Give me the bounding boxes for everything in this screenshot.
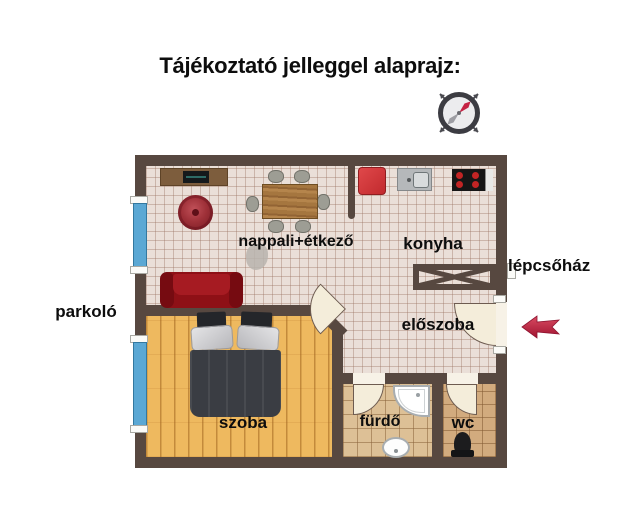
sink-faucet [407, 178, 411, 182]
sink-basin [413, 172, 429, 188]
bathroom-door-gap [353, 373, 385, 384]
pillow [190, 325, 234, 352]
dining-chair [294, 170, 310, 183]
entrance-arrow-icon [521, 314, 561, 340]
room-label-konyha: konyha [383, 235, 483, 253]
dining-chair [317, 194, 330, 210]
room-label-eloszoba: előszoba [390, 316, 486, 334]
sink-drain [394, 449, 398, 453]
tv-accent [186, 176, 206, 178]
duvet [190, 350, 281, 417]
dining-chair [295, 220, 311, 233]
sofa-arm-left [160, 272, 174, 308]
outside-label-parkolo: parkoló [42, 303, 130, 321]
round-rug [178, 195, 213, 230]
floor-plan-page: Tájékoztató jelleggel alaprajz: [0, 0, 640, 508]
dining-table [262, 184, 318, 219]
door-frame-mark [493, 295, 506, 303]
wall-bedroom-right [332, 326, 343, 457]
bedroom-window [133, 342, 147, 426]
kitchen-sink [397, 168, 432, 191]
outside-label-lepcsohaz: lépcsőház [508, 257, 616, 275]
wall-kitchen-stub [348, 166, 355, 219]
closet-symbol [413, 264, 496, 290]
toilet-tank [451, 450, 474, 457]
pillow [236, 325, 280, 352]
stove-burner [472, 181, 479, 188]
floor-plan: nappali+étkező konyha előszoba szoba für… [135, 155, 507, 468]
sofa-seat [173, 274, 230, 295]
dining-chair [268, 220, 284, 233]
dining-chair [268, 170, 284, 183]
living-room-window [133, 203, 147, 267]
room-label-szoba: szoba [193, 414, 293, 432]
compass-icon [431, 85, 487, 141]
tv-stand [160, 168, 228, 186]
wc-door-gap [447, 373, 478, 384]
stove-burner [472, 172, 479, 179]
bathroom-sink [382, 437, 410, 458]
entrance-door-gap [496, 302, 507, 347]
sofa [160, 272, 243, 308]
window-sill [130, 266, 148, 274]
stove-panel [485, 169, 493, 191]
room-label-wc: wc [436, 414, 490, 432]
tv-screen [183, 171, 209, 183]
rug-center [192, 209, 199, 216]
door-frame-mark [493, 346, 506, 354]
room-label-nappali: nappali+étkező [201, 234, 391, 251]
bed [190, 312, 281, 420]
page-title: Tájékoztató jelleggel alaprajz: [128, 54, 492, 77]
stove [452, 169, 493, 191]
room-label-furdo: fürdő [342, 414, 418, 431]
shower-inner [398, 389, 425, 413]
shower-drain [416, 393, 420, 397]
dining-chair [246, 196, 259, 212]
sofa-arm-right [229, 272, 243, 308]
fridge [358, 167, 386, 195]
window-sill [130, 425, 148, 433]
stove-burner [456, 172, 463, 179]
stove-burner [456, 181, 463, 188]
